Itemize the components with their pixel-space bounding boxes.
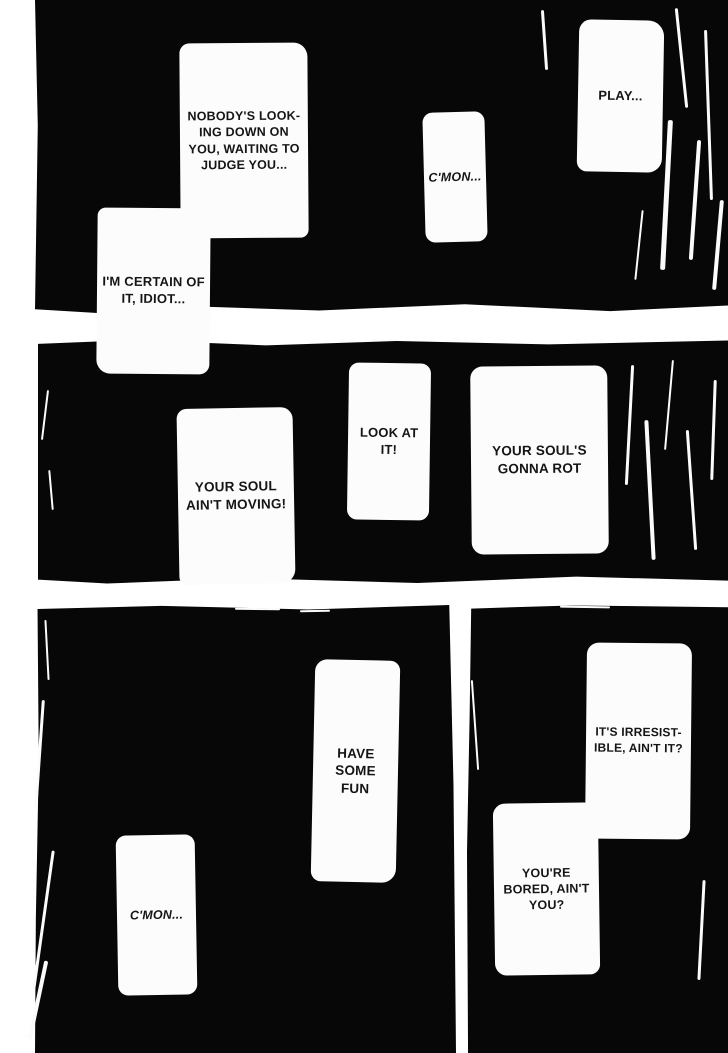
speech-bubble-youre-bored: YOU'RE BORED, AIN'T YOU?	[493, 802, 600, 975]
manga-page: PLAY... C'MON... NOBODY'S LOOK- ING DOWN…	[0, 0, 728, 1053]
speech-text: I'M CERTAIN OF IT, IDIOT...	[102, 274, 205, 309]
speech-bubble-play: PLAY...	[577, 19, 665, 172]
speech-text: LOOK AT IT!	[360, 424, 419, 459]
speech-bubble-look-at-it: LOOK AT IT!	[347, 362, 431, 520]
speech-text: YOUR SOUL AIN'T MOVING!	[186, 478, 287, 515]
speech-text: PLAY...	[598, 87, 643, 105]
ink-scratch	[235, 608, 280, 610]
speech-bubble-soul-aint-moving: YOUR SOUL AIN'T MOVING!	[176, 407, 295, 585]
speech-bubble-cmon-top: C'MON...	[422, 111, 487, 243]
speech-bubble-irresistible: IT'S IRRESIST- IBLE, AIN'T IT?	[585, 642, 692, 839]
speech-text: YOUR SOUL'S GONNA ROT	[492, 442, 587, 478]
speech-bubble-soul-gonna-rot: YOUR SOUL'S GONNA ROT	[470, 365, 609, 554]
speech-text: YOU'RE BORED, AIN'T YOU?	[503, 864, 590, 914]
speech-bubble-im-certain: I'M CERTAIN OF IT, IDIOT...	[96, 208, 210, 375]
speech-bubble-have-some-fun: HAVE SOME FUN	[311, 659, 401, 883]
speech-text: IT'S IRRESIST- IBLE, AIN'T IT?	[594, 725, 683, 757]
speech-bubble-cmon-bottom: C'MON...	[116, 834, 198, 995]
speech-text: NOBODY'S LOOK- ING DOWN ON YOU, WAITING …	[187, 108, 300, 174]
speech-text: C'MON...	[428, 168, 482, 186]
speech-text: C'MON...	[130, 906, 183, 923]
speech-text: HAVE SOME FUN	[316, 744, 394, 798]
